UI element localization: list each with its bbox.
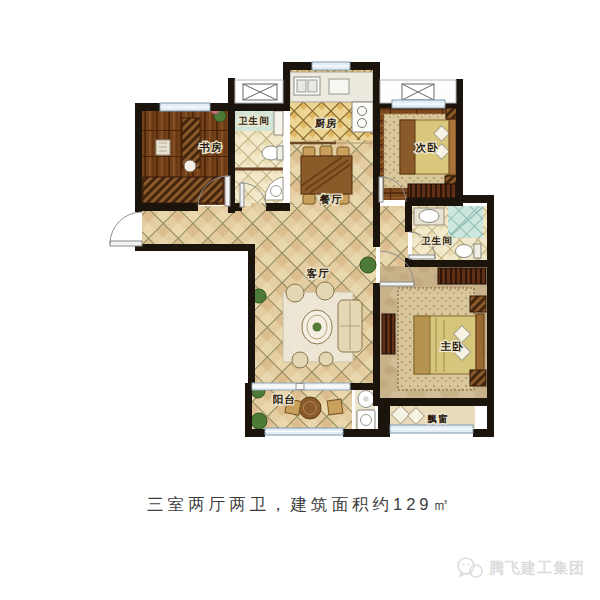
bathroom1-toilet-tank bbox=[277, 146, 283, 160]
bedroom2-blanket bbox=[400, 120, 415, 174]
label-balcony: 阳台 bbox=[273, 393, 296, 405]
label-bedroom2: 次卧 bbox=[416, 141, 439, 154]
bathroom1-vanity bbox=[274, 111, 283, 135]
label-kitchen: 厨房 bbox=[314, 117, 338, 129]
floorplan-page: 书房 卫生间 厨房 次卧 餐厅 客厅 卫生间 主卧 阳台 飘窗 三室两厅两卫，建… bbox=[0, 0, 600, 600]
living-plant bbox=[360, 257, 376, 273]
study-chair bbox=[184, 160, 196, 172]
master-dresser bbox=[382, 314, 395, 354]
bathroom2-sink bbox=[419, 210, 439, 223]
label-bathroom2: 卫生间 bbox=[421, 235, 453, 246]
bedroom2-nightstand bbox=[446, 108, 457, 119]
bathroom1-basin bbox=[271, 186, 282, 197]
bedroom2-wardrobe bbox=[408, 184, 456, 198]
bay-window-glass bbox=[390, 425, 473, 433]
balcony-plant bbox=[251, 413, 267, 429]
label-dining: 餐厅 bbox=[320, 193, 343, 205]
label-living: 客厅 bbox=[306, 267, 330, 279]
kitchen-sink-bowl-right bbox=[308, 80, 317, 92]
living-armchair bbox=[286, 284, 304, 302]
balcony-chair bbox=[327, 399, 343, 415]
master-nightstand bbox=[470, 296, 486, 312]
suite-hallway-floor bbox=[380, 206, 408, 266]
laundry-basin-drain bbox=[363, 396, 369, 402]
label-master: 主卧 bbox=[441, 340, 464, 352]
master-nightstand bbox=[470, 370, 486, 386]
wechat-icon bbox=[456, 556, 484, 580]
bathroom2-toilet-tank bbox=[474, 244, 481, 258]
plan-caption: 三室两厅两卫，建筑面积约129㎡ bbox=[0, 494, 600, 516]
kitchen-board bbox=[329, 79, 349, 94]
living-stool bbox=[292, 352, 308, 368]
master-headboard bbox=[476, 314, 484, 376]
label-study: 书房 bbox=[199, 141, 223, 153]
balcony-window bbox=[265, 428, 343, 435]
kitchen-sink-bowl-left bbox=[297, 80, 306, 92]
floorplan-drawing: 书房 卫生间 厨房 次卧 餐厅 客厅 卫生间 主卧 阳台 飘窗 bbox=[0, 0, 600, 470]
bedroom2-window bbox=[392, 100, 445, 108]
dining-chair bbox=[303, 194, 315, 204]
label-bathroom1: 卫生间 bbox=[238, 115, 270, 126]
balcony-table bbox=[299, 397, 321, 419]
washing-machine bbox=[357, 410, 375, 430]
bathroom2-toilet bbox=[456, 245, 473, 258]
kitchen-window bbox=[312, 62, 350, 70]
balcony-sliding-door bbox=[252, 383, 350, 390]
entry-door bbox=[110, 212, 142, 246]
watermark-text: 腾飞建工集团 bbox=[489, 559, 585, 578]
room-bedroom2 bbox=[384, 108, 457, 198]
master-wardrobe bbox=[438, 268, 486, 284]
living-armchair bbox=[316, 282, 334, 300]
label-bay-window: 飘窗 bbox=[427, 413, 449, 424]
living-stool bbox=[319, 352, 333, 366]
study-window bbox=[160, 103, 210, 111]
entry-floor bbox=[142, 206, 254, 246]
bedroom2-headboard bbox=[449, 117, 456, 175]
living-table-plant bbox=[313, 323, 322, 332]
dining-chair bbox=[320, 146, 332, 156]
master-blanket bbox=[414, 316, 430, 374]
watermark: 腾飞建工集团 bbox=[456, 556, 585, 580]
